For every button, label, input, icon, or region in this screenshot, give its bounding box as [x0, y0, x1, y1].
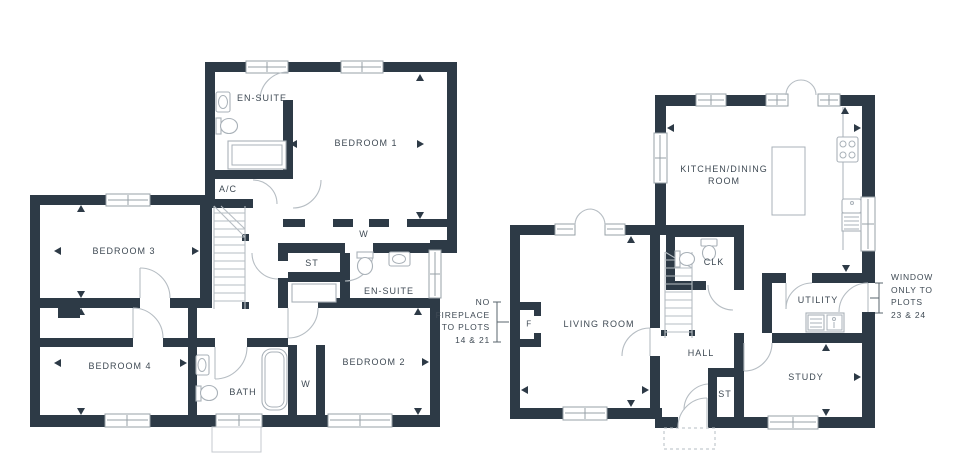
first-floor-bay-outline: [212, 427, 261, 452]
note-line: PLOTS: [891, 296, 933, 309]
room-label-storage-ground: ST: [718, 389, 732, 399]
ensuite2-toilet-icon: [357, 252, 373, 275]
clk-basin-icon: [675, 251, 695, 267]
bath-toilet-icon: [196, 386, 218, 402]
window-note-bracket: [870, 283, 883, 313]
note-line: 23 & 24: [891, 309, 933, 322]
ensuite2-basin-icon: [389, 252, 410, 266]
note-line: 14 & 21: [436, 334, 490, 347]
note-line: TO PLOTS: [436, 321, 490, 334]
floorplan-canvas: [0, 0, 965, 469]
ensuite-basin-icon: [216, 92, 230, 112]
room-label-bath: BATH: [229, 387, 256, 397]
room-label-utility: UTILITY: [798, 295, 839, 305]
room-label-bedroom-3: BEDROOM 3: [92, 246, 155, 256]
room-label-ensuite-mid: EN-SUITE: [364, 286, 414, 296]
room-label-wardrobe-side: W: [301, 379, 311, 389]
room-label-wardrobe-top: W: [359, 229, 369, 239]
bathtub-icon: [262, 349, 287, 410]
utility-sink-icon: [806, 313, 844, 332]
note-window-only: WINDOW ONLY TO PLOTS 23 & 24: [891, 271, 933, 321]
storage-cupboard: [292, 284, 336, 302]
fireplace-label: F: [526, 320, 531, 329]
room-label-hall: HALL: [688, 348, 715, 358]
room-label-clk: CLK: [704, 257, 725, 267]
first-floor-stairs: [214, 206, 245, 309]
note-no-fireplace: NO FIREPLACE TO PLOTS 14 & 21: [436, 296, 490, 346]
note-line: NO: [436, 296, 490, 309]
hob-icon: [837, 137, 858, 162]
note-line: FIREPLACE: [436, 309, 490, 322]
porch-outline: [664, 428, 715, 449]
ensuite-toilet-icon: [216, 118, 238, 134]
note-line: ONLY TO: [891, 284, 933, 297]
room-label-study: STUDY: [788, 372, 824, 382]
ground-floor-plan: [510, 80, 875, 449]
kitchen-sink-icon: [842, 199, 861, 231]
room-label-kitchen-dining: KITCHEN/DINING ROOM: [663, 163, 785, 187]
room-label-bedroom-4: BEDROOM 4: [88, 361, 151, 371]
fireplace-note-bracket: [493, 302, 509, 342]
room-label-bedroom-1: BEDROOM 1: [334, 138, 397, 148]
bath-basin-icon: [196, 355, 209, 375]
room-label-bedroom-2: BEDROOM 2: [342, 357, 405, 367]
room-label-ensuite-top: EN-SUITE: [237, 93, 287, 103]
floorplan-page: EN-SUITE BEDROOM 1 A/C BEDROOM 3 W ST EN…: [0, 0, 965, 469]
room-label-ac: A/C: [219, 184, 237, 194]
note-line: WINDOW: [891, 271, 933, 284]
shower-icon: [228, 141, 286, 169]
room-label-living: LIVING ROOM: [563, 319, 634, 329]
room-label-storage-first: ST: [305, 258, 319, 268]
